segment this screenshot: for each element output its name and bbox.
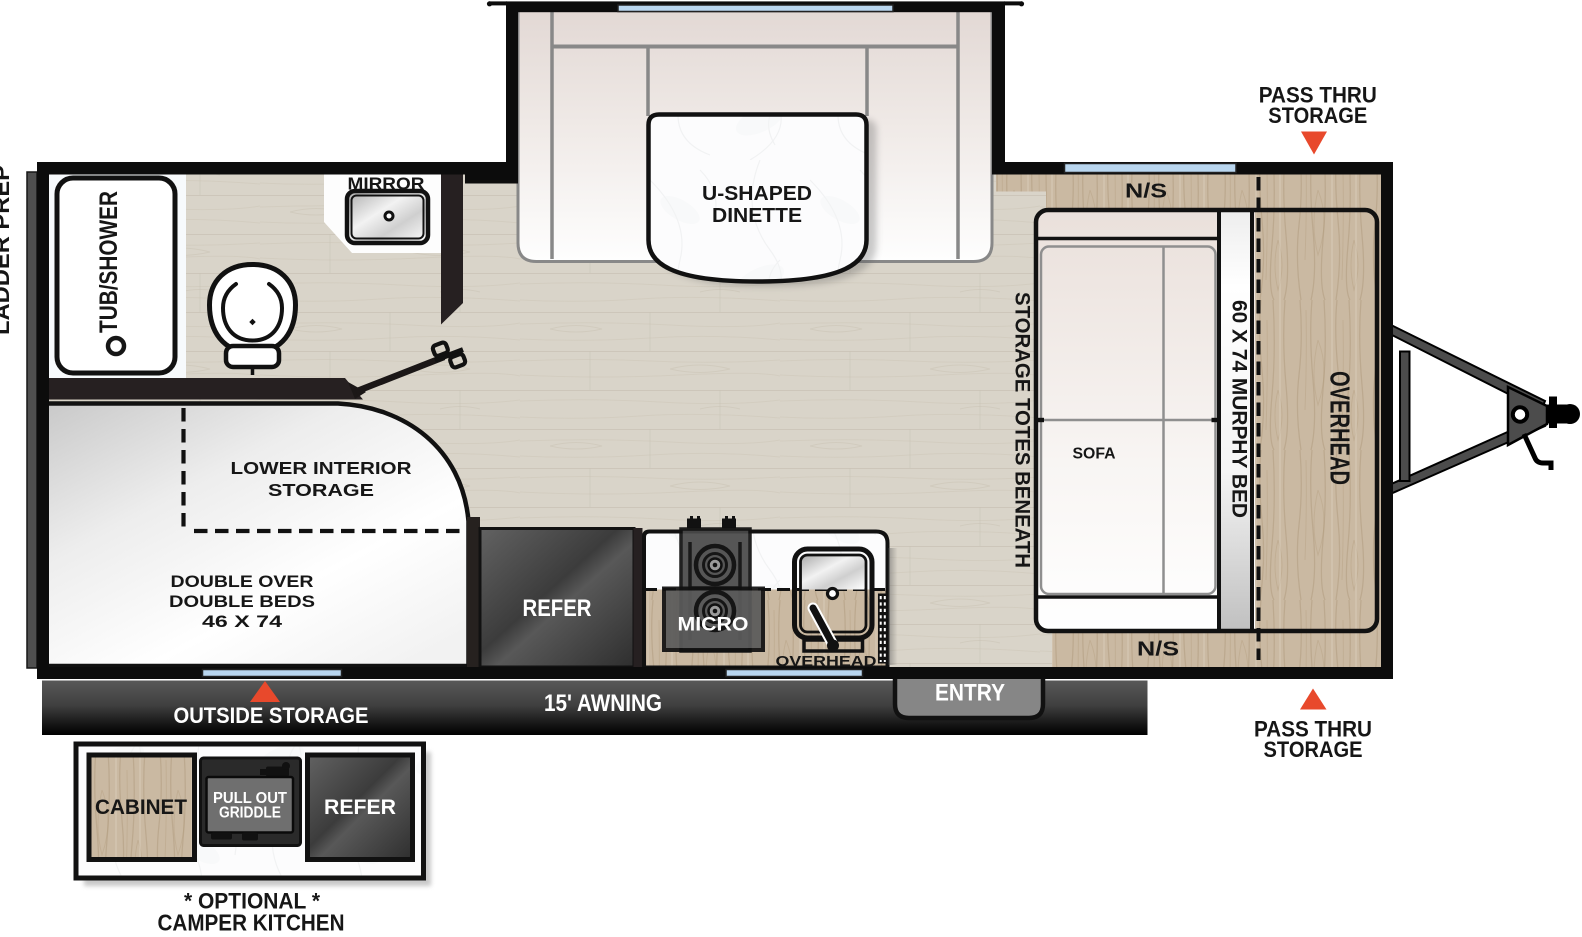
svg-text:MICRO: MICRO: [678, 615, 749, 636]
svg-text:REFER: REFER: [523, 595, 592, 622]
svg-text:LADDER PREP: LADDER PREP: [0, 165, 14, 335]
svg-text:DOUBLE BEDS: DOUBLE BEDS: [169, 592, 315, 611]
svg-text:N/S: N/S: [1125, 181, 1167, 203]
svg-text:STORAGE: STORAGE: [1264, 737, 1363, 762]
svg-text:46 X 74: 46 X 74: [202, 612, 283, 631]
svg-text:OVERHEAD: OVERHEAD: [1325, 371, 1356, 485]
svg-text:CAMPER KITCHEN: CAMPER KITCHEN: [158, 910, 345, 933]
svg-text:REFER: REFER: [324, 796, 396, 819]
svg-text:N/S: N/S: [1137, 639, 1179, 661]
svg-text:15' AWNING: 15' AWNING: [544, 690, 662, 717]
svg-text:TUB/SHOWER: TUB/SHOWER: [95, 191, 123, 333]
svg-text:U-SHAPED: U-SHAPED: [702, 183, 812, 205]
svg-text:OUTSIDE STORAGE: OUTSIDE STORAGE: [174, 703, 369, 728]
svg-text:CABINET: CABINET: [95, 796, 187, 819]
svg-text:GRIDDLE: GRIDDLE: [219, 805, 281, 822]
svg-text:SOFA: SOFA: [1073, 446, 1116, 463]
svg-text:60 X 74 MURPHY BED: 60 X 74 MURPHY BED: [1228, 300, 1251, 518]
svg-text:DINETTE: DINETTE: [712, 205, 802, 227]
svg-text:DOUBLE OVER: DOUBLE OVER: [171, 572, 314, 591]
svg-text:ENTRY: ENTRY: [935, 680, 1005, 707]
svg-text:LOWER INTERIOR: LOWER INTERIOR: [231, 458, 412, 478]
svg-text:STORAGE TOTES BENEATH: STORAGE TOTES BENEATH: [1011, 292, 1034, 568]
svg-text:MIRROR: MIRROR: [348, 174, 425, 194]
svg-text:STORAGE: STORAGE: [268, 480, 374, 500]
svg-text:STORAGE: STORAGE: [1268, 103, 1367, 128]
